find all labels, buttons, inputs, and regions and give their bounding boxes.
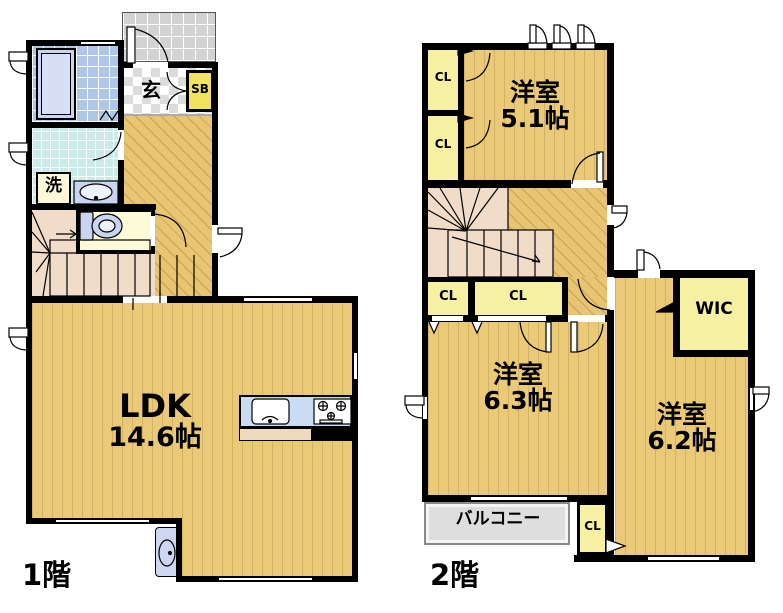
laundry-door-gap bbox=[118, 130, 124, 160]
balcony-label: バルコニー bbox=[428, 511, 568, 529]
hall-to-6-2-door-gap bbox=[607, 277, 614, 310]
toilet-door-gap bbox=[150, 216, 155, 246]
ldk-south-window-left bbox=[55, 519, 150, 523]
ldk-east-window bbox=[353, 352, 358, 380]
bedroom-6-2-size: 6.2帖 bbox=[613, 428, 751, 454]
closet-4-track bbox=[477, 315, 547, 322]
bedroom-6-3-entry-gap bbox=[568, 315, 605, 322]
porch-tiles bbox=[122, 12, 216, 62]
bedroom-6-2-label: 洋室 6.2帖 bbox=[613, 402, 751, 455]
shoebox-label: SB bbox=[188, 83, 212, 96]
hallway-corridor-2f bbox=[568, 277, 607, 315]
bedroom-6-2-top-door-gap bbox=[638, 270, 660, 278]
hall-east-door-gap bbox=[212, 225, 218, 253]
bedroom-6-2-south-window bbox=[647, 556, 720, 561]
bedroom-6-3-size: 6.3帖 bbox=[438, 388, 598, 414]
ldk-size: 14.6帖 bbox=[78, 424, 232, 452]
bedroom-5-1-size: 5.1帖 bbox=[460, 106, 610, 132]
closet-3-track bbox=[431, 315, 464, 322]
closet-2-label: CL bbox=[428, 138, 458, 151]
entrance-door-gap bbox=[133, 62, 168, 68]
stairs-floor-2f bbox=[428, 188, 508, 277]
wic-label: WIC bbox=[678, 301, 750, 319]
kitchen-lower-dark bbox=[311, 428, 352, 441]
bedroom-5-1-name: 洋室 bbox=[460, 80, 610, 106]
closet-1-label: CL bbox=[428, 71, 458, 84]
ldk-entry-door-gap bbox=[123, 296, 167, 303]
floor1-label: 1階 bbox=[22, 560, 117, 590]
bedroom-6-2-name: 洋室 bbox=[613, 402, 751, 428]
stairs-floor-1f-a bbox=[32, 210, 76, 296]
floor2-label: 2階 bbox=[430, 560, 525, 590]
entrance-label: 玄 bbox=[136, 80, 166, 101]
kitchen-counter bbox=[239, 395, 352, 428]
ldk-name: LDK bbox=[78, 390, 232, 424]
closet-3-label: CL bbox=[430, 290, 466, 304]
ldk-label: LDK 14.6帖 bbox=[78, 390, 232, 452]
bedroom-6-3-name: 洋室 bbox=[438, 362, 598, 388]
closet-5-label: CL bbox=[578, 520, 607, 533]
bathtub bbox=[36, 48, 76, 120]
bathroom-top-window bbox=[80, 41, 116, 45]
hallway-floor-2f bbox=[508, 188, 607, 277]
laundry-label: 洗 bbox=[38, 178, 69, 196]
ldk-south-window-right bbox=[218, 577, 313, 581]
ldk-north-window bbox=[243, 297, 313, 302]
hall-east-small-door-gap bbox=[607, 205, 614, 225]
closet-4-label: CL bbox=[498, 290, 538, 304]
floorplan-canvas: 洗 SB 玄 bbox=[0, 0, 783, 613]
stairs-floor-1f-b bbox=[76, 253, 155, 296]
toilet-room bbox=[76, 208, 155, 254]
bedroom-6-3-west-window bbox=[422, 396, 428, 420]
bedroom-6-3-label: 洋室 6.3帖 bbox=[438, 362, 598, 415]
bedroom-5-1-label: 洋室 5.1帖 bbox=[460, 80, 610, 133]
bedroom-5-1-door-gap bbox=[571, 180, 603, 188]
kitchen-lower-cabinet bbox=[239, 428, 312, 441]
balcony-sliding-window bbox=[470, 496, 568, 501]
